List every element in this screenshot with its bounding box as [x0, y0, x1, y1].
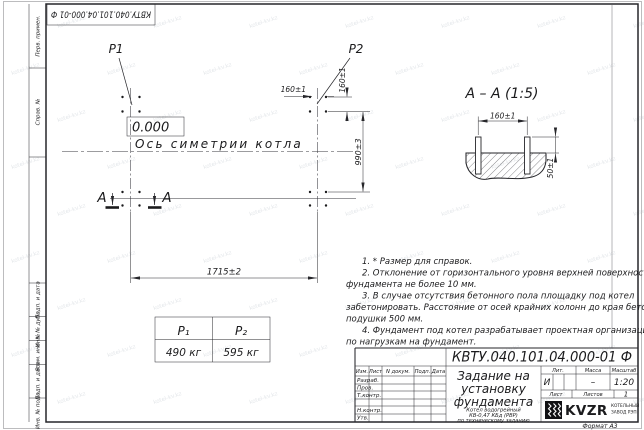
sig-row-utv: Утв.: [357, 416, 369, 422]
margin-label-inv-podl: Инв. № подл.: [36, 391, 42, 429]
sheets-value: 1: [624, 391, 628, 399]
kvzr-logo-text: KVZR: [565, 403, 608, 419]
note-line-1: 1. * Размер для справок.: [362, 257, 472, 267]
scale-header: Масштаб: [612, 368, 637, 374]
table-value-p2: 595 кг: [223, 347, 259, 359]
watermark-text: kotel-kv.kz: [153, 297, 183, 312]
watermark-text: kotel-kv.kz: [345, 15, 375, 30]
table-header-p1: P₁: [177, 324, 189, 338]
watermark-text: kotel-kv.kz: [249, 391, 279, 406]
drawing-sheet: kotel-kv.kzkotel-kv.kzkotel-kv.kzkotel-k…: [0, 0, 644, 430]
watermark-text: kotel-kv.kz: [11, 62, 41, 77]
note-line-4: 3. В случае отсутствия бетонного пола пл…: [362, 292, 635, 302]
watermark-text: kotel-kv.kz: [537, 109, 567, 124]
logo-caption-1: КОТЕЛЬНЫЙ: [611, 402, 639, 409]
watermark-text: kotel-kv.kz: [57, 297, 87, 312]
watermark-text: kotel-kv.kz: [395, 62, 425, 77]
scale-value: 1:20: [614, 378, 634, 388]
rev-header-izm: Изм.: [356, 369, 368, 375]
watermark-text: kotel-kv.kz: [299, 156, 329, 171]
mass-header: Масса: [585, 368, 602, 374]
section-title: А – А (1:5): [465, 86, 539, 102]
watermark-text: kotel-kv.kz: [299, 250, 329, 265]
note-line-3: фундамента не более 10 мм.: [346, 280, 477, 290]
margin-label-perv-primen: Перв. примен.: [36, 15, 42, 57]
watermark-text: kotel-kv.kz: [249, 15, 279, 30]
note-line-2: 2. Отклонение от горизонтального уровня …: [362, 269, 644, 279]
sig-row-tkontr: Т.контр.: [357, 393, 381, 399]
note-line-8: по нагрузкам на фундамент.: [346, 338, 476, 348]
doc-number: КВТУ.040.101.04.000-01 Ф: [452, 350, 632, 366]
watermark-text: kotel-kv.kz: [249, 297, 279, 312]
sig-row-nkontr: Н.контр.: [357, 408, 382, 414]
notes: 1. * Размер для справок. 2. Отклонение о…: [346, 257, 644, 348]
lit-header: Лит.: [551, 368, 564, 374]
dim-bolt-h-label: 160±1: [281, 85, 306, 94]
rev-header-data: Дата: [431, 369, 445, 375]
watermark-text: kotel-kv.kz: [107, 250, 137, 265]
anchor-bolt-right: [525, 137, 531, 174]
watermark-text: kotel-kv.kz: [345, 203, 375, 218]
dim-bolt-v-label: 160±1: [338, 67, 347, 92]
title-line-2: установку: [460, 382, 527, 396]
watermark-text: kotel-kv.kz: [57, 109, 87, 124]
p1-label: P1: [109, 42, 124, 56]
dim-width-label: 1715±2: [207, 268, 241, 278]
boiler-axis-label: Ось симетрии котла: [135, 137, 303, 151]
anchor-bolt-left: [476, 137, 482, 174]
sheets-label: Листов: [582, 392, 602, 398]
watermark-text: kotel-kv.kz: [107, 344, 137, 359]
table-header-p2: P₂: [235, 324, 247, 338]
watermark-text: kotel-kv.kz: [441, 15, 471, 30]
watermark-text: kotel-kv.kz: [203, 250, 233, 265]
watermark-text: kotel-kv.kz: [107, 62, 137, 77]
note-line-6: подушки 500 мм.: [346, 315, 423, 325]
watermark-text: kotel-kv.kz: [11, 156, 41, 171]
watermark-text: kotel-kv.kz: [153, 15, 183, 30]
title-line-1: Задание на: [457, 369, 530, 383]
watermark-text: kotel-kv.kz: [57, 203, 87, 218]
margin-label-sprav-n: Справ. №: [36, 98, 42, 125]
dim-height-label: 990±3: [354, 138, 363, 165]
section-dim-spacing: 160±1: [490, 112, 515, 121]
section-letter-left: А: [96, 190, 106, 206]
rev-header-list: Лист: [368, 369, 383, 375]
lit-value: И: [544, 378, 551, 388]
watermark-text: kotel-kv.kz: [395, 156, 425, 171]
note-line-5: забетонировать. Расстояние от осей крайн…: [346, 303, 644, 313]
watermark-text: kotel-kv.kz: [249, 203, 279, 218]
logo-caption-2: ЗАВОД РЭП: [611, 410, 637, 416]
watermark-text: kotel-kv.kz: [57, 391, 87, 406]
sig-row-razrab: Разраб.: [357, 378, 379, 384]
watermark-text: kotel-kv.kz: [299, 344, 329, 359]
watermark-text: kotel-kv.kz: [203, 156, 233, 171]
watermark-text: kotel-kv.kz: [249, 109, 279, 124]
section-letter-right: А: [161, 190, 171, 206]
subtitle-line-3: по техническому заданию: [457, 418, 530, 424]
corner-stamp-number: КВТУ.040.101.04.000-01 Ф: [51, 9, 151, 19]
rev-header-podp: Подп.: [415, 369, 431, 375]
rev-header-ndokum: N докум.: [386, 369, 410, 375]
note-line-7: 4. Фундамент под котел разрабатывает про…: [362, 326, 644, 336]
sheet-label: Лист: [548, 392, 563, 398]
watermark-text: kotel-kv.kz: [441, 203, 471, 218]
watermark-text: kotel-kv.kz: [153, 391, 183, 406]
p2-label: P2: [349, 42, 364, 56]
mass-value: –: [591, 378, 596, 388]
watermark-text: kotel-kv.kz: [107, 156, 137, 171]
watermark-text: kotel-kv.kz: [299, 62, 329, 77]
watermark-layer: kotel-kv.kzkotel-kv.kzkotel-kv.kzkotel-k…: [11, 15, 644, 406]
watermark-text: kotel-kv.kz: [441, 109, 471, 124]
section-dim-protrusion: 50±1: [546, 158, 555, 179]
watermark-text: kotel-kv.kz: [11, 250, 41, 265]
elevation-value: 0.000: [132, 121, 169, 136]
watermark-text: kotel-kv.kz: [491, 250, 521, 265]
sig-row-prov: Пров.: [357, 386, 373, 392]
watermark-text: kotel-kv.kz: [537, 15, 567, 30]
format-note: Формат А3: [582, 423, 617, 430]
watermark-text: kotel-kv.kz: [537, 203, 567, 218]
watermark-text: kotel-kv.kz: [491, 62, 521, 77]
watermark-text: kotel-kv.kz: [203, 62, 233, 77]
table-value-p1: 490 кг: [166, 347, 202, 359]
